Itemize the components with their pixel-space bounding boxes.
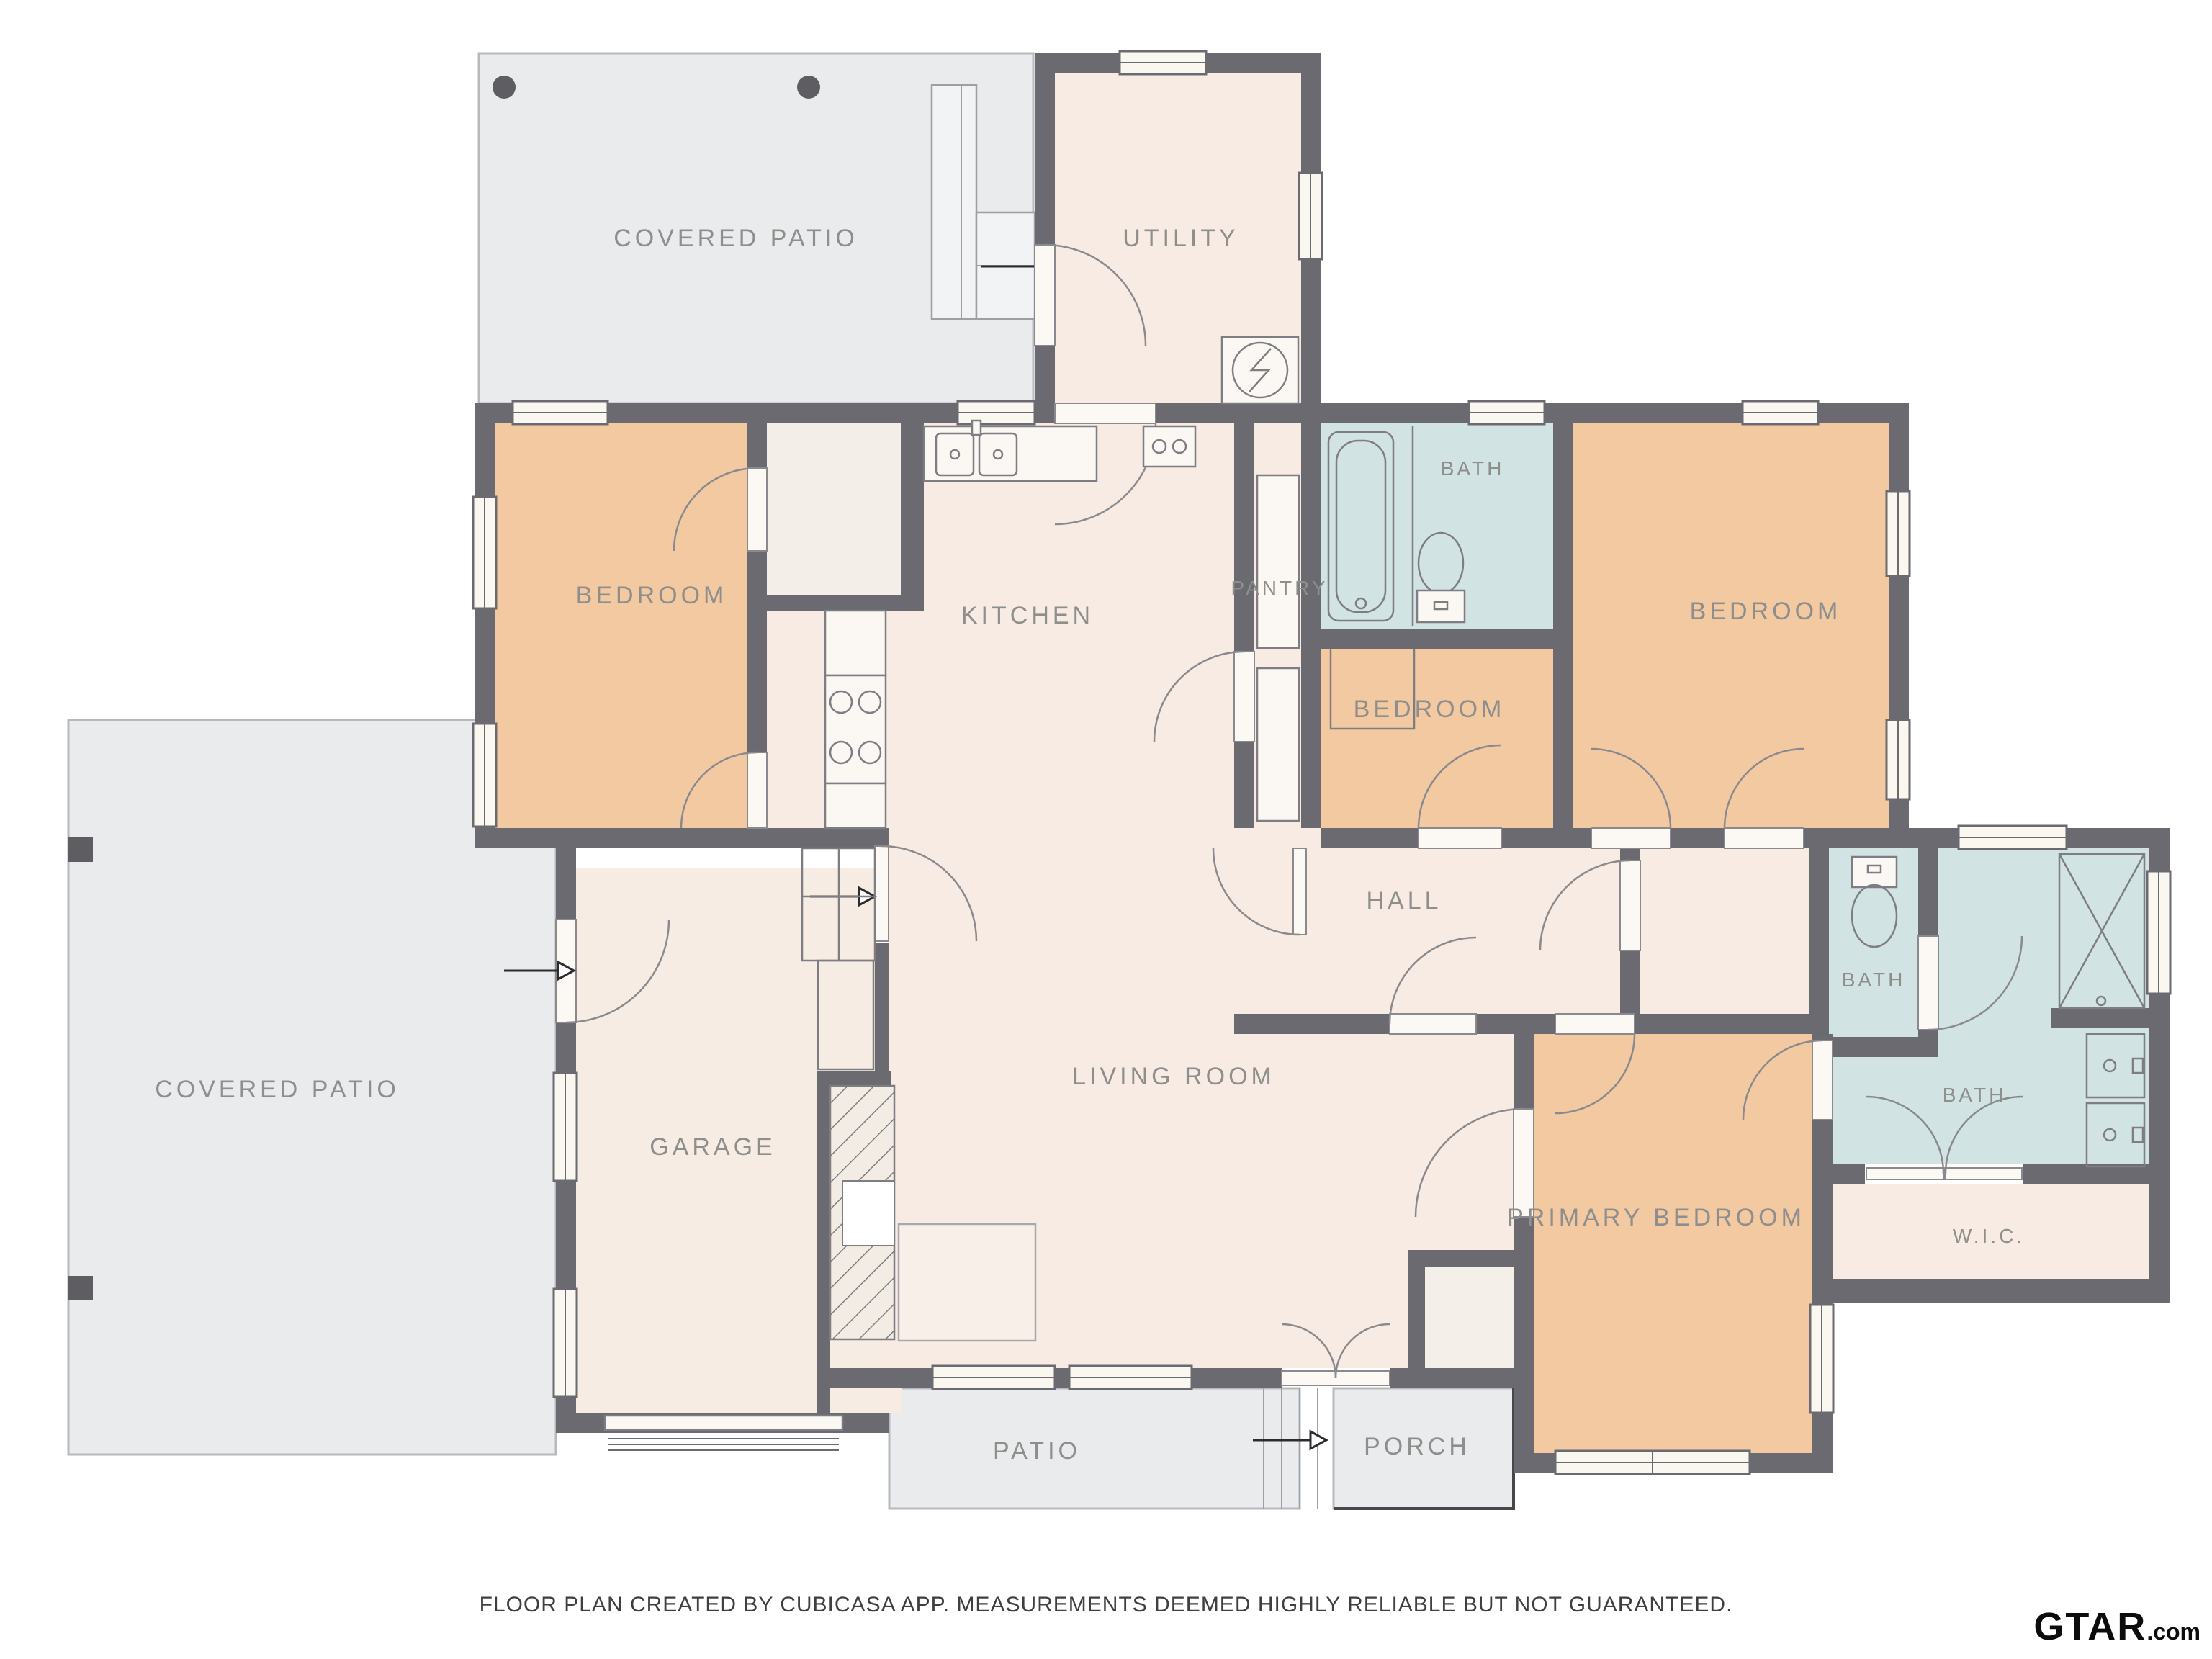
door-leaf bbox=[1725, 828, 1804, 848]
primary-bedroom-floor bbox=[1534, 1034, 1812, 1453]
door-leaf bbox=[1514, 1109, 1534, 1217]
door-leaf bbox=[1591, 828, 1671, 848]
door-leaf bbox=[1035, 245, 1055, 346]
pantry-shelf bbox=[1257, 668, 1299, 821]
window-icon bbox=[932, 1366, 1055, 1389]
door-leaf bbox=[1812, 1040, 1833, 1120]
window-icon bbox=[1743, 401, 1818, 424]
window-icon bbox=[554, 1289, 577, 1397]
electrical-panel-icon bbox=[1222, 337, 1298, 403]
patio-post-icon bbox=[68, 837, 93, 862]
door-leaf bbox=[1390, 1014, 1476, 1034]
room-label: BATH bbox=[1943, 1084, 2007, 1106]
window-icon bbox=[473, 724, 496, 827]
door-leaf bbox=[1055, 403, 1156, 423]
window-icon bbox=[1555, 1451, 1750, 1474]
window-icon bbox=[1959, 826, 2067, 849]
room-label: BATH bbox=[1842, 968, 1906, 991]
disclaimer-text: FLOOR PLAN CREATED BY CUBICASA APP. MEAS… bbox=[0, 1593, 2212, 1617]
window-icon bbox=[1299, 173, 1322, 259]
pantry-shelf bbox=[1257, 475, 1299, 648]
window-icon bbox=[1810, 1305, 1833, 1413]
room-label: GARAGE bbox=[649, 1133, 775, 1161]
room-label: UTILITY bbox=[1123, 225, 1239, 252]
door-leaf bbox=[1866, 1168, 1943, 1179]
door-leaf bbox=[875, 846, 889, 941]
bedroom-middle-floor bbox=[1321, 649, 1553, 828]
window-icon bbox=[2147, 871, 2170, 994]
door-leaf bbox=[1555, 1014, 1635, 1034]
window-icon bbox=[1069, 1366, 1192, 1389]
door-leaf bbox=[747, 468, 767, 551]
room-label: LIVING ROOM bbox=[1072, 1063, 1275, 1090]
patio-post-icon bbox=[68, 1276, 93, 1300]
door-leaf bbox=[1234, 652, 1254, 742]
hall-closet-floor bbox=[1640, 848, 1809, 1014]
window-icon bbox=[1887, 491, 1910, 576]
room-label: COVERED PATIO bbox=[613, 225, 858, 252]
patio-post-icon bbox=[797, 76, 820, 99]
room-label: HALL bbox=[1366, 887, 1442, 914]
patio-area: PATIO bbox=[889, 1388, 1326, 1509]
gtar-logo-suffix: .com bbox=[2146, 1619, 2200, 1645]
window-icon bbox=[554, 1073, 577, 1181]
door-leaf bbox=[747, 752, 767, 828]
room-label: PRIMARY BEDROOM bbox=[1507, 1204, 1805, 1231]
gtar-logo: GTAR.com bbox=[2033, 1604, 2200, 1649]
window-icon bbox=[1887, 720, 1910, 799]
room-label: COVERED PATIO bbox=[155, 1076, 400, 1103]
door-leaf bbox=[1293, 848, 1306, 935]
window-icon bbox=[1469, 401, 1545, 424]
room-label: BEDROOM bbox=[1354, 696, 1506, 723]
gtar-logo-brand: GTAR bbox=[2033, 1605, 2146, 1648]
door-leaf bbox=[1419, 828, 1501, 848]
room-label: W.I.C. bbox=[1953, 1225, 2025, 1247]
cooktop-icon bbox=[1143, 426, 1195, 467]
door-leaf bbox=[1918, 936, 1938, 1030]
window-icon bbox=[958, 401, 1035, 424]
room-label: BEDROOM bbox=[576, 582, 728, 609]
window-icon bbox=[1120, 51, 1206, 74]
floor-plan: COVERED PATIO COVERED PATIO PATIO PORCH bbox=[0, 0, 2212, 1659]
window-icon bbox=[513, 401, 608, 424]
room-label: KITCHEN bbox=[961, 602, 1094, 629]
door-leaf bbox=[1945, 1168, 2022, 1179]
patio-post-icon bbox=[493, 76, 516, 99]
room-label: PANTRY bbox=[1231, 577, 1328, 599]
bedroom-top-right-floor bbox=[1573, 423, 1889, 828]
entry-closet-floor bbox=[1425, 1267, 1514, 1368]
bedroom-top-left-floor bbox=[495, 423, 747, 828]
room-label: BEDROOM bbox=[1690, 598, 1842, 625]
room-label: BATH bbox=[1441, 457, 1505, 480]
stove-icon bbox=[825, 611, 886, 828]
room-label: PATIO bbox=[993, 1437, 1081, 1465]
window-icon bbox=[473, 497, 496, 608]
room-label: PORCH bbox=[1364, 1433, 1470, 1460]
door-leaf bbox=[1620, 860, 1640, 950]
outdoor-counter bbox=[932, 85, 976, 319]
porch-area: PORCH bbox=[1334, 1388, 1514, 1509]
covered-patio-top-area: COVERED PATIO bbox=[479, 53, 1053, 403]
bedroom-closet-floor bbox=[767, 423, 901, 595]
kitchen-sink-icon bbox=[924, 421, 1097, 481]
